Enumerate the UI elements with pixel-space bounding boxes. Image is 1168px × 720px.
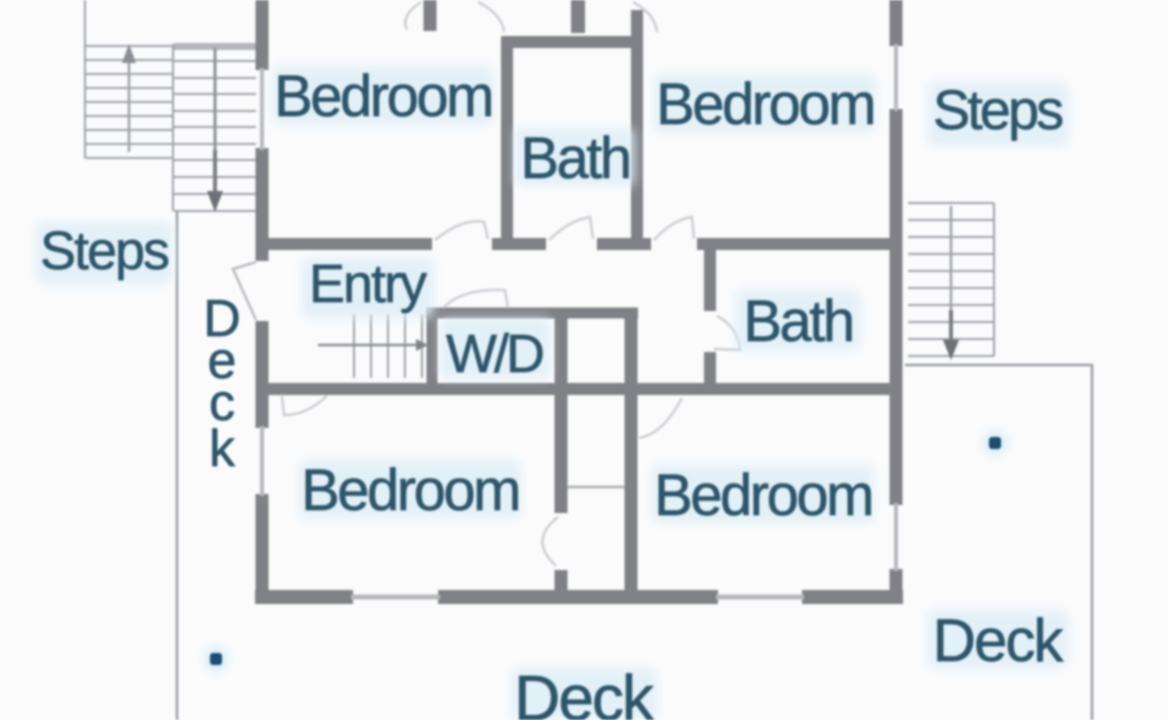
svg-text:Bedroom: Bedroom (274, 64, 492, 129)
svg-text:Steps: Steps (40, 221, 169, 281)
svg-text:Bedroom: Bedroom (654, 463, 872, 528)
svg-text:Deck: Deck (933, 607, 1065, 674)
svg-text:Bedroom: Bedroom (301, 458, 519, 523)
svg-text:Deck: Deck (514, 662, 655, 720)
svg-text:Bath: Bath (743, 289, 852, 354)
svg-text:Bedroom: Bedroom (656, 72, 874, 137)
svg-text:Entry: Entry (309, 254, 427, 314)
svg-text:Steps: Steps (933, 78, 1062, 141)
svg-text:Bath: Bath (520, 126, 629, 191)
svg-text:k: k (209, 420, 236, 478)
svg-text:W/D: W/D (446, 324, 543, 384)
